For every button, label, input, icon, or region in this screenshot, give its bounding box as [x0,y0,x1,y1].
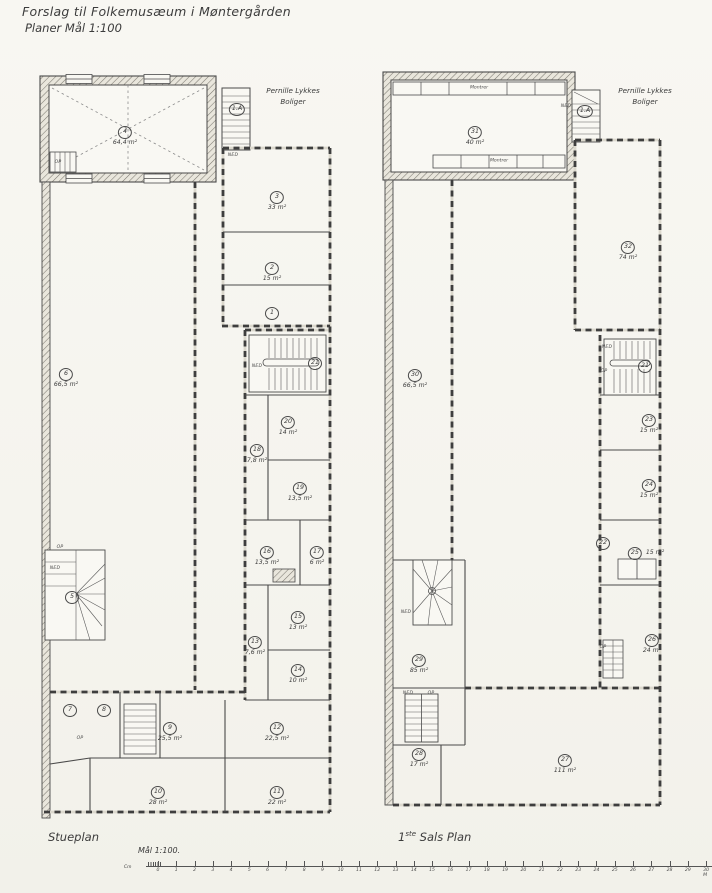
stair-direction-label: OP [601,369,608,374]
scale-tick [195,861,196,867]
room-number: 27 [558,754,572,767]
caption-1-sals-plan: 1ste Sals Plan [398,830,471,844]
room-area: 25,5 m² [158,736,182,743]
room-label: 187,8 m² [247,438,267,465]
stair-8 [124,704,156,754]
scale-tick [670,861,671,867]
neighbor-label-left: Pernille Lykkes Boliger [266,85,319,107]
stair-direction-label: NED [252,364,262,369]
room-label: 333 m² [268,185,286,212]
scale-tick [377,861,378,867]
scale-tick-label: 28 [667,868,673,873]
room-label: 1410 m² [289,658,307,685]
scale-tick [688,861,689,867]
scale-tick [596,861,597,867]
room-label: 666,5 m² [54,362,78,389]
room-number: 12 [270,722,284,735]
room-label: 21 [638,354,652,373]
scale-tick [542,861,543,867]
scale-tick-label: 27 [648,868,654,873]
room-number: 10 [151,786,165,799]
room-label: 1 [265,301,279,320]
scale-tick-label: 1 [175,868,178,873]
montrer-label: Montrer [490,159,508,164]
room-label: 1122 m² [268,780,286,807]
room-label: 2415 m² [640,473,658,500]
scale-tick-label: 29 [685,868,691,873]
room-area: 33 m² [268,205,286,212]
room-number: 4 [118,126,132,139]
scale-tick [176,861,177,867]
room-label: 464,4 m² [113,120,137,147]
room-area: 15 m² [263,276,281,283]
scale-tick-label: 8 [303,868,306,873]
room-number: 18 [250,444,264,457]
scale-label: Mål 1:100. [138,846,180,855]
scale-tick [286,861,287,867]
room-label: 2985 m² [410,648,428,675]
room-area: 85 m² [410,668,428,675]
scale-tick-label: 15 [429,868,435,873]
room-label: 2624 m² [643,628,661,655]
floor-plan-stueplan [36,64,336,824]
room-number: 16 [260,546,274,559]
scale-tick [359,861,360,867]
neighbor-line2: Boliger [280,97,305,106]
scale-tick [249,861,250,867]
scale-tick [450,861,451,867]
room-label: 2014 m² [279,410,297,437]
scale-tick-label: 17 [466,868,472,873]
room-label: 2515 m² [628,541,664,560]
room-number: 3 [270,191,284,204]
scale-tick-label: 13 [393,868,399,873]
scale-tick-label: 2 [193,868,196,873]
scale-tick-label: 19 [502,868,508,873]
room-area: 66,5 m² [54,382,78,389]
scale-tick [396,861,397,867]
scale-tick-label: 5 [248,868,251,873]
room-area: 7,6 m² [245,650,265,657]
room-number: 7 [63,704,77,717]
room-number: 19 [293,482,307,495]
room-number: 31 [468,126,482,139]
scale-tick-label: 0 [157,868,160,873]
stair-direction-label: OP [600,645,607,650]
stair-number: 1.A [577,105,593,118]
stair-direction-label: NED [561,104,571,109]
scale-tick [615,861,616,867]
scale-tick [651,861,652,867]
scale-tick-label: 24 [594,868,600,873]
scale-tick [505,861,506,867]
scale-tick-label: 21 [539,868,545,873]
room-label: 3066,5 m² [403,363,427,390]
neighbor-line1: Pernille Lykkes [618,86,671,95]
room-label: 215 m² [263,256,281,283]
room-number: 20 [281,416,295,429]
room-number: 29 [412,654,426,667]
room-label: 3274 m² [619,235,637,262]
room-area: 15 m² [640,428,658,435]
room-number: 1 [265,307,279,320]
scale-tick [341,861,342,867]
room-label: 3140 m² [466,120,484,147]
room-label: 5 [65,585,79,604]
room-label: 7 [63,698,77,717]
room-area: 13 m² [289,625,307,632]
room-label: 21 [308,351,322,370]
stair-28 [405,694,438,742]
party-wall-west-right [385,180,393,805]
room-area: 64,4 m² [113,140,137,147]
floor-plan-1-sal [376,64,676,809]
room-number: 9 [163,722,177,735]
scale-tick-label: 11 [356,868,362,873]
stair-direction-label: NED [401,610,411,615]
stair-label-1a-left: 1.A [229,97,245,116]
scale-tick [304,861,305,867]
room-area: 22 m² [268,800,286,807]
room-label: 2817 m² [410,742,428,769]
stair-direction-label: OP [55,160,62,165]
room-number: 13 [248,636,262,649]
scale-tick-label: 16 [447,868,453,873]
room-area: 13,5 m² [255,560,279,567]
scale-tick [158,861,159,867]
room-label: 1613,5 m² [255,540,279,567]
drawing-title: Forslag til Folkemusæum i Møntergården [22,4,291,19]
scale-tick [469,861,470,867]
neighbor-line1: Pernille Lykkes [266,86,319,95]
stair-direction-label: OP [77,736,84,741]
room-number: 8 [97,704,111,717]
room-area: 7,8 m² [247,458,267,465]
neighbor-label-right: Pernille Lykkes Boliger [618,85,671,107]
party-wall-west [42,182,50,818]
room-number: 28 [412,748,426,761]
room-label: 2315 m² [640,408,658,435]
room-area: 24 m² [643,648,661,655]
room-label: 8 [97,698,111,717]
stair-direction-label: OP [57,545,64,550]
scale-tick [523,861,524,867]
scale-tick [560,861,561,867]
stair-direction-label: NED [228,153,238,158]
room-label: 925,5 m² [158,716,182,743]
scale-tick-label: 3 [211,868,214,873]
scale-tick [633,861,634,867]
room-number: 11 [270,786,284,799]
room-label: 1913,5 m² [288,476,312,503]
stair-number: 1.A [229,103,245,116]
room-number: 23 [642,414,656,427]
scale-tick-label: 26 [630,868,636,873]
room-label: 1028 m² [149,780,167,807]
stair-direction-label: OP [428,691,435,696]
scale-tick-label: 14 [411,868,417,873]
room-area: 6 m² [310,560,324,567]
room-area: 22,5 m² [265,736,289,743]
scale-tick [432,861,433,867]
room-label: 176 m² [310,540,324,567]
scale-subdivision-hatch [148,862,161,867]
room-area: 66,5 m² [403,383,427,390]
stair-direction-label: NED [602,345,612,350]
stair-direction-label: NED [403,691,413,696]
scale-tick [706,861,707,867]
scale-tick [268,861,269,867]
room-area: 15 m² [640,493,658,500]
room-number: 24 [642,479,656,492]
spiral-stair-29 [413,560,452,625]
room-label: 1513 m² [289,605,307,632]
caption-stueplan: Stueplan [48,830,99,844]
caption-rest: Sals Plan [416,830,471,844]
scale-bar: Mål 1:100. Cm 01234567891011121314151617… [120,852,712,888]
drawing-subtitle: Planer Mål 1:100 [25,21,122,35]
scale-tick-label: 6 [266,868,269,873]
room-number: 21 [638,360,652,373]
scale-tick-label: 7 [284,868,287,873]
room-area: 15 m² [646,549,664,556]
room-area: 13,5 m² [288,496,312,503]
stair-label-1a-right: 1.A [577,99,593,118]
room-area: 14 m² [279,430,297,437]
scale-tick [213,861,214,867]
room-number: 14 [291,664,305,677]
scale-tick [231,861,232,867]
scale-tick-label: 18 [484,868,490,873]
scale-tick-label: 30 M [703,868,709,878]
room-number: 21 [308,357,322,370]
room-label: 1222,5 m² [265,716,289,743]
room-label: 27111 m² [554,748,576,775]
room-number: 22 [596,537,610,550]
room-number: 30 [408,369,422,382]
scale-tick [487,861,488,867]
room-area: 28 m² [149,800,167,807]
neighbor-line2: Boliger [632,97,657,106]
room-area: 10 m² [289,678,307,685]
scale-tick-label: 20 [520,868,526,873]
caption-superscript: ste [405,830,416,838]
montrer-label: Montrer [470,86,488,91]
room-label: 22 [596,531,610,550]
room-number: 25 [628,547,642,560]
room-number: 32 [621,241,635,254]
room-number: 5 [65,591,79,604]
room-area: 74 m² [619,255,637,262]
scale-tick-label: 12 [374,868,380,873]
stair-direction-label: NED [50,566,60,571]
scale-tick-label: 22 [557,868,563,873]
scale-tick [578,861,579,867]
room-number: 26 [645,634,659,647]
scale-tick-label: 9 [321,868,324,873]
room-number: 15 [291,611,305,624]
scale-tick-label: 25 [612,868,618,873]
room-number: 6 [59,368,73,381]
scale-unit-label: Cm [124,865,131,870]
room-label: 137,6 m² [245,630,265,657]
room-number: 17 [310,546,324,559]
scale-tick-label: 23 [575,868,581,873]
room-area: 111 m² [554,768,576,775]
room-number: 2 [265,262,279,275]
scale-tick-label: 4 [230,868,233,873]
room-area: 40 m² [466,140,484,147]
room-area: 17 m² [410,762,428,769]
scale-tick [414,861,415,867]
scale-tick [322,861,323,867]
scale-tick-label: 10 [338,868,344,873]
